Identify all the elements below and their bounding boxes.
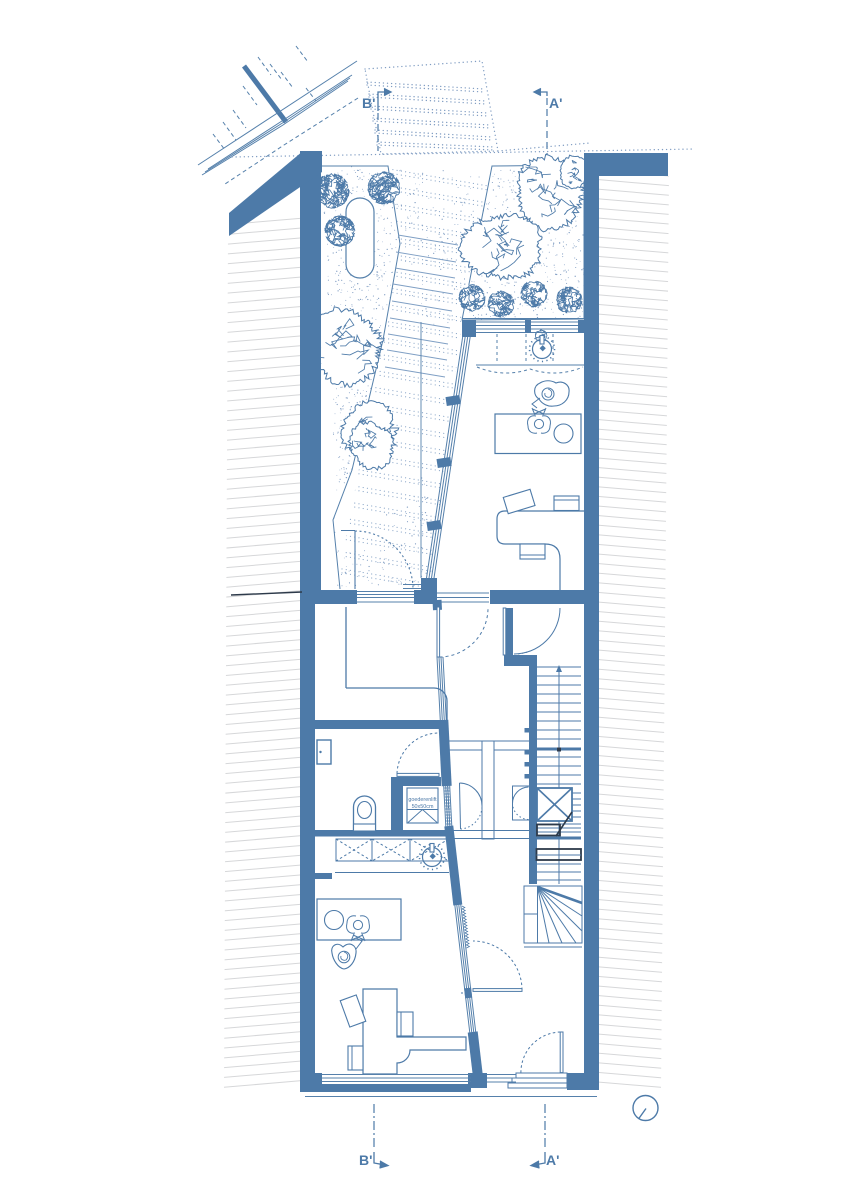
svg-text:A': A' bbox=[549, 95, 562, 111]
svg-text:goederenlift: goederenlift bbox=[408, 797, 437, 803]
svg-text:B': B' bbox=[362, 95, 375, 111]
svg-text:50x50cm: 50x50cm bbox=[412, 804, 434, 810]
svg-text:A': A' bbox=[546, 1152, 559, 1168]
svg-text:B': B' bbox=[359, 1152, 372, 1168]
